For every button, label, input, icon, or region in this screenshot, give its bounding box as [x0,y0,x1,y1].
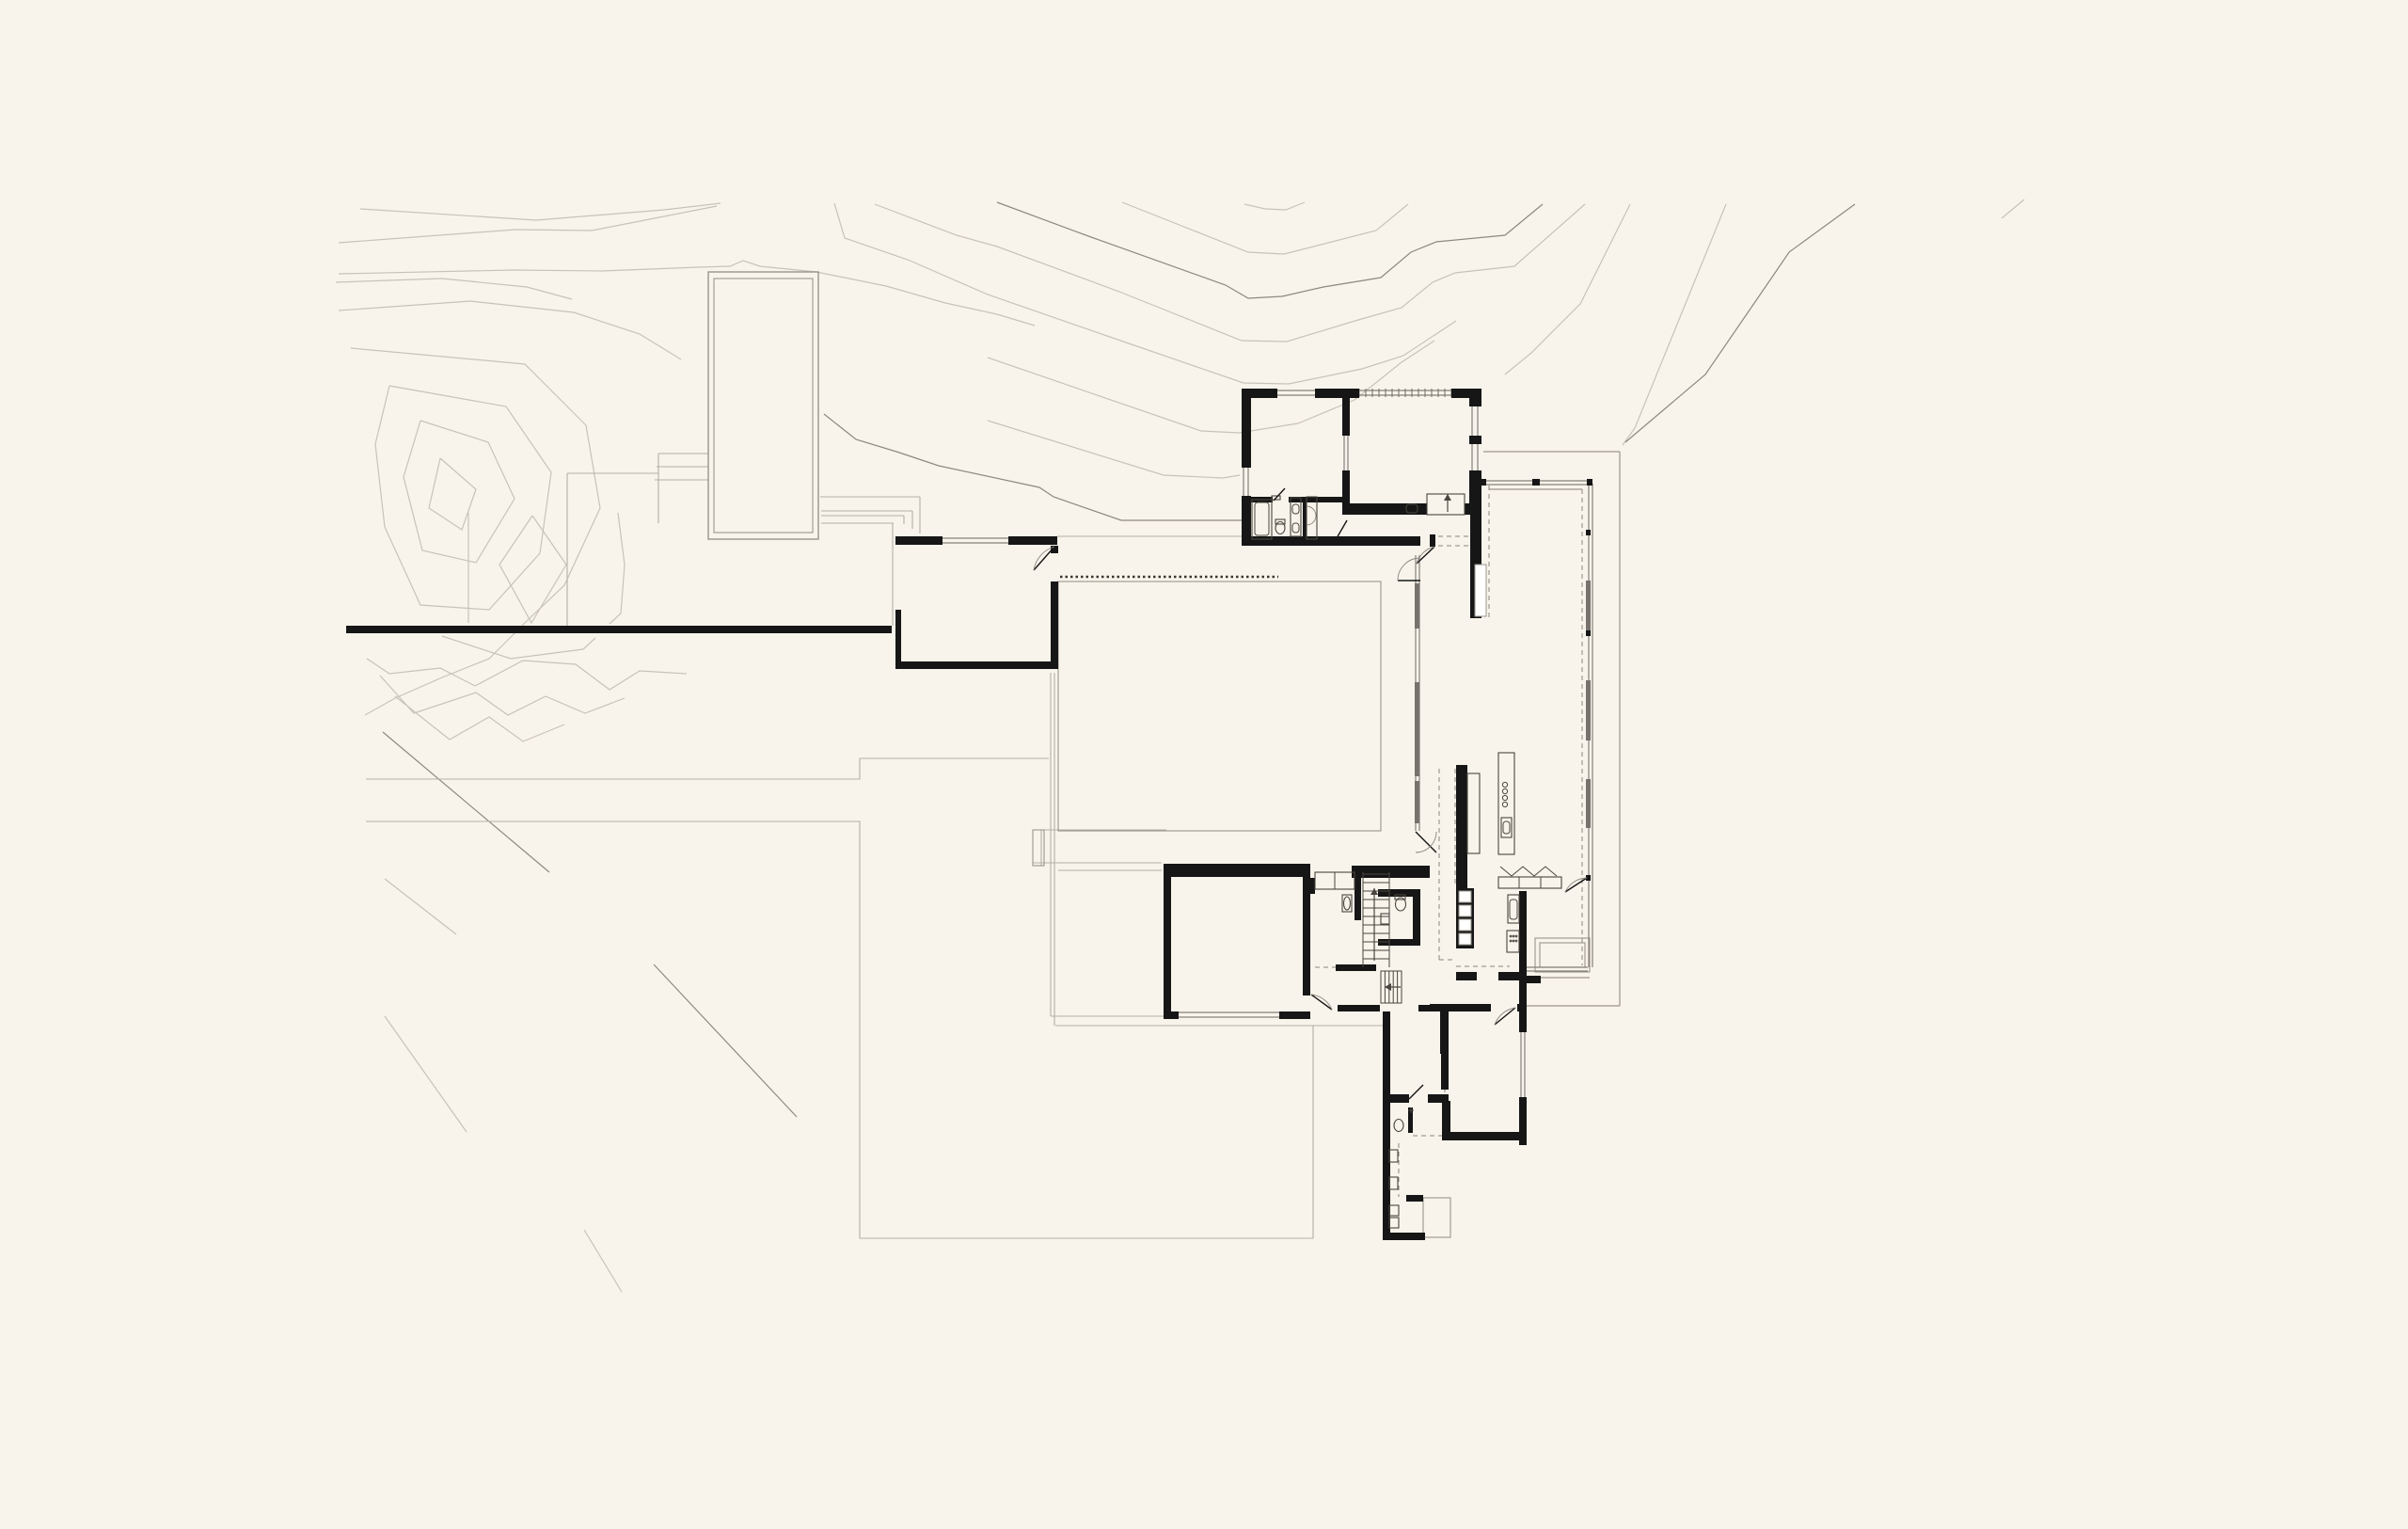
wall-segment [1315,389,1359,398]
wall-segment [1469,436,1481,444]
wall-segment [1383,1094,1409,1103]
glazing-frame-segment [1586,779,1591,828]
floor-plan-canvas [0,0,2408,1529]
wall-segment [1342,398,1350,436]
glazing-post [1586,530,1591,535]
wall-segment [895,610,901,665]
wall-segment [1242,389,1251,468]
wall-segment [1303,497,1307,539]
wall-segment [1456,972,1477,980]
glazing-post [1532,479,1540,486]
wall-segment [1519,891,1527,1027]
wall-segment [1413,889,1420,946]
glazing-frame-segment [1415,781,1419,823]
wall-segment [1430,534,1435,547]
sliding-panel [1475,565,1486,616]
wall-segment [1338,1005,1380,1011]
sliding-panel [1459,905,1471,916]
wall-segment [1406,1195,1423,1202]
wall-segment [1008,536,1057,545]
floor-plan-stage [0,0,2408,1529]
wall-segment [1051,581,1058,668]
paper-background [0,0,2408,1529]
wall-segment [895,536,943,545]
sliding-panel [1459,933,1471,945]
wall-segment [1442,1132,1527,1140]
wall-segment [1354,872,1361,920]
glazing-post [1586,630,1591,636]
wall-segment [1279,1011,1310,1019]
wall-segment [1498,972,1524,980]
glazing-post [1481,479,1486,486]
wall-segment [1242,536,1420,546]
glazing-frame-segment [1415,583,1419,629]
wall-segment [1164,864,1310,877]
glazing-frame-segment [1586,581,1591,632]
wall-segment [1440,1010,1449,1054]
glazing-frame-segment [1586,680,1591,741]
wall-segment [1524,976,1541,983]
wall-segment [1378,889,1418,897]
wall-segment [1342,470,1350,515]
wall-segment [1336,964,1376,971]
wall-segment [1456,765,1467,889]
sliding-panel [1459,891,1471,902]
wall-segment [346,626,892,633]
wall-segment [1383,1233,1425,1240]
glazing-frame-segment [1415,682,1419,776]
wall-segment [1164,1011,1179,1019]
wall-segment [1469,470,1481,503]
glazing-post [1587,479,1592,486]
wall-segment [1469,389,1481,406]
wall-segment [1307,878,1315,894]
wall-segment [1430,1004,1491,1011]
sliding-panel [1459,919,1471,931]
wall-segment [895,661,1058,669]
wall-segment [1164,864,1171,1018]
